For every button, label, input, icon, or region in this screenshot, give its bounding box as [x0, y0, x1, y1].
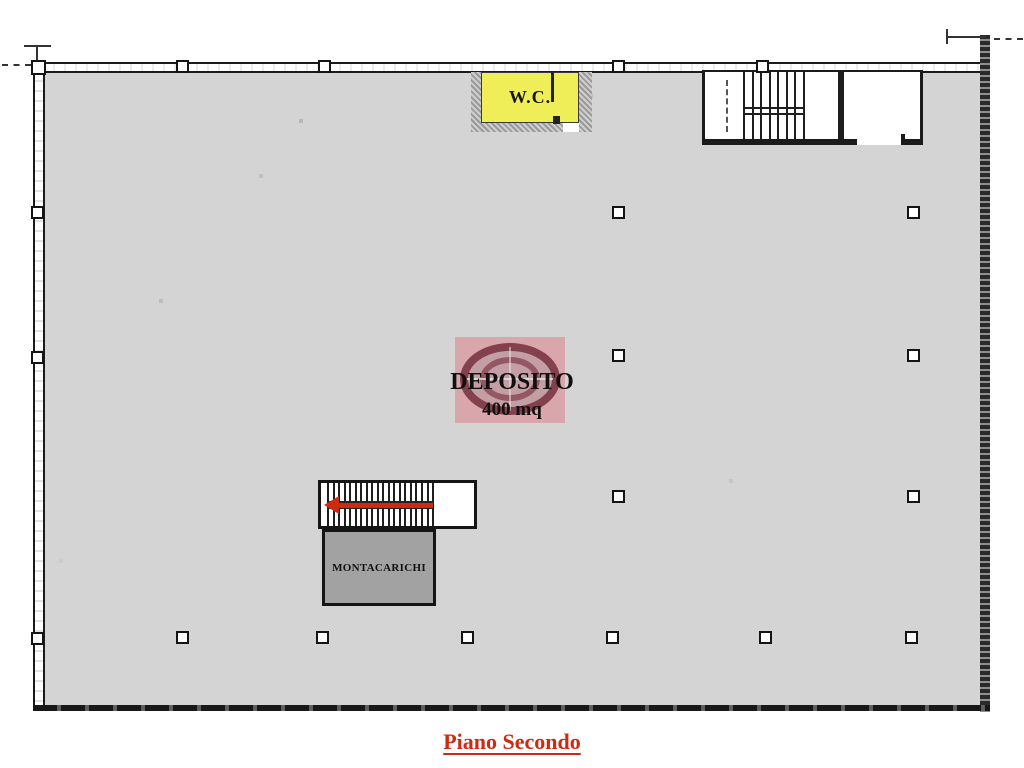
survey-line-top-right: [946, 36, 986, 38]
left-wall: [33, 62, 45, 708]
concrete-column: [907, 349, 920, 362]
survey-tick-top-left-horizontal: [24, 45, 51, 47]
survey-tick-top-right-vertical: [946, 29, 948, 44]
floor-plan-canvas: W.C. MONTACARICHI DEPOSITO 400 mq: [0, 0, 1024, 768]
concrete-column: [907, 206, 920, 219]
concrete-column: [907, 490, 920, 503]
bottom-wall: [33, 705, 990, 711]
concrete-column: [612, 206, 625, 219]
wc-door-opening: [563, 123, 579, 132]
concrete-column: [612, 349, 625, 362]
stair-landing-line: [743, 113, 805, 115]
stair-landing-line: [743, 107, 805, 109]
stairwell-top-right: [702, 70, 923, 145]
scan-specks: [0, 0, 2, 2]
survey-line-top-left: [2, 64, 31, 66]
wc-room: W.C.: [471, 72, 592, 132]
concrete-column: [612, 490, 625, 503]
stairwell-bottom-wall: [705, 139, 857, 145]
concrete-column: [316, 631, 329, 644]
left-wall-pillar: [31, 351, 44, 364]
direction-arrow-head: [324, 496, 339, 514]
concrete-column: [905, 631, 918, 644]
top-wall-pillar: [176, 60, 189, 73]
concrete-column: [176, 631, 189, 644]
survey-dash-top-right: [994, 38, 1023, 40]
stair-handrail-line: [726, 80, 728, 132]
top-wall-pillar: [318, 60, 331, 73]
stairwell-divider-wall: [838, 72, 844, 145]
concrete-column: [461, 631, 474, 644]
shaft-bottom-wall-stub: [901, 139, 920, 145]
stair-mid: [318, 480, 477, 529]
deposito-label: DEPOSITO: [412, 369, 612, 396]
montacarichi-label: MONTACARICHI: [332, 562, 426, 574]
direction-arrow-shaft: [338, 503, 433, 508]
concrete-column: [606, 631, 619, 644]
right-wall: [980, 35, 990, 712]
montacarichi-room: MONTACARICHI: [322, 529, 436, 606]
top-wall-pillar: [756, 60, 769, 73]
top-wall-pillar: [612, 60, 625, 73]
corner-pillar: [31, 60, 46, 75]
wc-partition-wall: [551, 72, 554, 102]
wc-door-pivot: [553, 116, 560, 124]
deposito-area-label: 400 mq: [412, 399, 612, 421]
wc-label: W.C.: [509, 87, 551, 108]
wc-room-interior: W.C.: [481, 72, 579, 123]
left-wall-pillar: [31, 632, 44, 645]
left-wall-pillar: [31, 206, 44, 219]
concrete-column: [759, 631, 772, 644]
page-title: Piano Secondo: [0, 729, 1024, 755]
